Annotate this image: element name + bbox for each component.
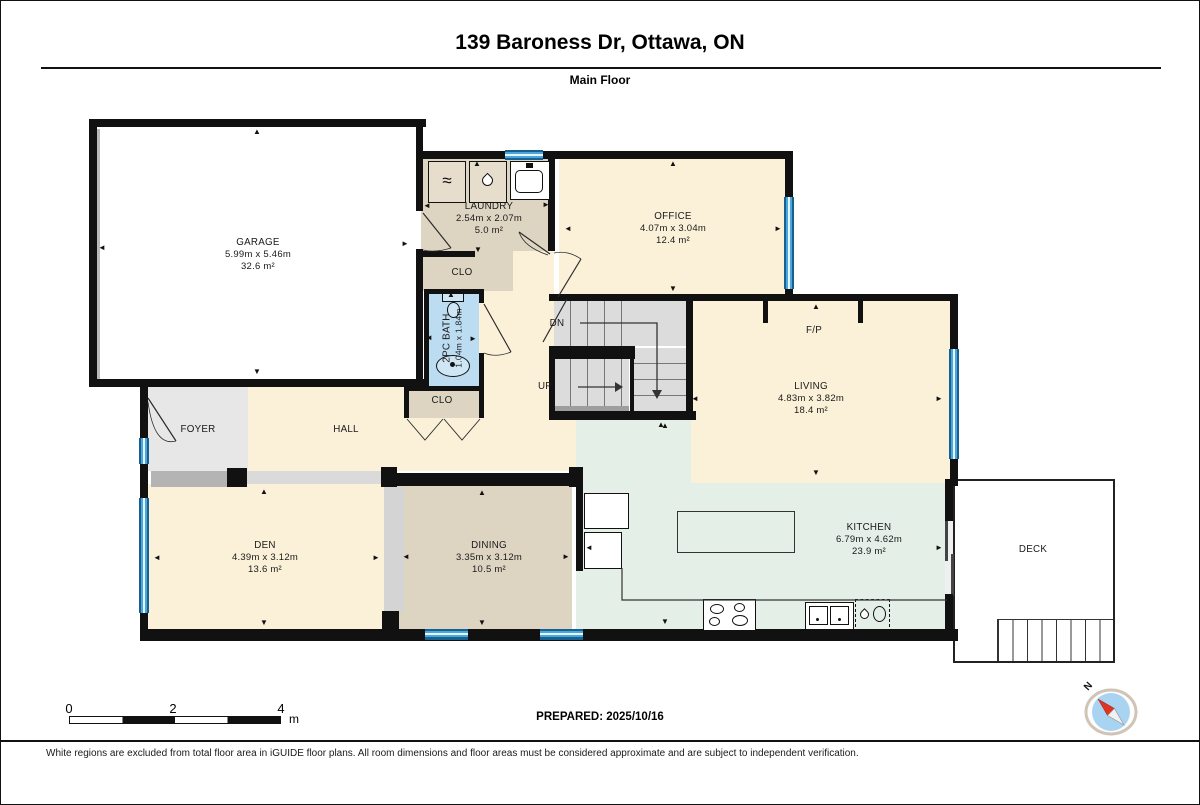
garage-door-panel — [97, 129, 100, 379]
window — [139, 438, 149, 464]
room-label-hall-closet: CLO — [432, 395, 453, 407]
floor-subtitle: Main Floor — [1, 73, 1199, 87]
wall — [89, 119, 426, 127]
room-name: LIVING — [778, 381, 844, 393]
corridor-floor-2 — [484, 291, 513, 391]
washer-icon: ≈ — [428, 161, 466, 203]
room-area: 10.5 m² — [456, 564, 522, 576]
window — [949, 349, 959, 459]
wall — [89, 379, 426, 387]
room-label-living: LIVING 4.83m x 3.82m 18.4 m² — [778, 381, 844, 417]
stairs-up-flight — [554, 359, 629, 408]
stove-burner — [710, 604, 724, 614]
wall-post — [227, 468, 247, 487]
room-label-bath: 2PC BATH 1.04m x 1.84m — [442, 308, 465, 367]
wall — [945, 486, 953, 521]
wall — [576, 486, 583, 571]
compass-rose: N — [1081, 677, 1139, 739]
deck-steps — [997, 619, 1113, 661]
dim-arrow-icon: ▼ — [478, 619, 486, 627]
room-name: DECK — [1019, 544, 1047, 556]
dim-arrow-icon: ▲ — [253, 128, 261, 136]
dim-arrow-icon: ◄ — [425, 334, 433, 342]
dim-arrow-icon: ► — [372, 554, 380, 562]
wall — [416, 249, 423, 379]
room-label-den: DEN 4.39m x 3.12m 13.6 m² — [232, 540, 298, 576]
room-name: 2PC BATH — [442, 308, 454, 367]
wall — [630, 359, 634, 414]
room-label-foyer: FOYER — [181, 424, 216, 436]
kitchen-island — [677, 511, 795, 553]
wall — [416, 119, 423, 211]
room-name: KITCHEN — [836, 522, 902, 534]
stairs-label: DN — [550, 318, 565, 330]
dim-arrow-icon: ◄ — [423, 202, 431, 210]
room-dims: 4.07m x 3.04m — [640, 223, 706, 235]
dim-arrow-icon: ▲ — [473, 160, 481, 168]
room-dims: 4.83m x 3.82m — [778, 393, 844, 405]
corridor-floor — [513, 251, 554, 391]
dishwasher-icon — [855, 599, 890, 632]
sink-basin — [515, 170, 543, 193]
footer-divider — [1, 740, 1200, 742]
dim-arrow-icon: ▼ — [474, 246, 482, 254]
room-label-dining: DINING 3.35m x 3.12m 10.5 m² — [456, 540, 522, 576]
dim-arrow-icon: ► — [469, 335, 477, 343]
room-label-office: OFFICE 4.07m x 3.04m 12.4 m² — [640, 211, 706, 247]
stairs-landing — [634, 299, 686, 346]
compass-north-label: N — [1082, 680, 1095, 693]
window — [784, 197, 794, 289]
room-area: 12.4 m² — [640, 235, 706, 247]
fridge-icon — [584, 493, 629, 529]
stove-icon — [703, 599, 756, 631]
window — [425, 629, 468, 640]
dim-arrow-icon: ▼ — [661, 618, 669, 626]
room-label-garage: GARAGE 5.99m x 5.46m 32.6 m² — [225, 237, 291, 273]
room-label-laundry-closet: CLO — [452, 267, 473, 279]
room-name: CLO — [432, 395, 453, 407]
stairs-down-label: DN — [550, 318, 565, 330]
title-divider — [41, 67, 1161, 69]
dim-arrow-icon: ◄ — [691, 395, 699, 403]
dim-arrow-icon: ▲ — [657, 421, 665, 429]
stairs-label: UP — [538, 381, 552, 393]
sink-basin — [830, 606, 849, 625]
sink-faucet — [526, 163, 533, 168]
room-area: 5.0 m² — [456, 225, 522, 237]
room-label-deck: DECK — [1019, 544, 1047, 556]
dim-arrow-icon: ◄ — [564, 225, 572, 233]
wall — [945, 479, 958, 486]
window — [139, 498, 149, 613]
kitchen-floor-upper — [576, 420, 691, 483]
wall — [549, 294, 958, 301]
dim-arrow-icon: ◄ — [98, 244, 106, 252]
room-dims: 2.54m x 2.07m — [456, 213, 522, 225]
dim-arrow-icon: ► — [542, 201, 550, 209]
room-name: F/P — [806, 325, 822, 337]
kitchen-sink-icon — [805, 602, 854, 630]
dim-arrow-icon: ► — [401, 240, 409, 248]
prepared-date: PREPARED: 2025/10/16 — [1, 711, 1199, 723]
room-label-laundry: LAUNDRY 2.54m x 2.07m 5.0 m² — [456, 201, 522, 237]
dim-arrow-icon: ▲ — [812, 303, 820, 311]
wall — [421, 251, 475, 257]
room-dims: 1.04m x 1.84m — [454, 308, 465, 367]
wall — [549, 346, 635, 359]
room-dims: 5.99m x 5.46m — [225, 249, 291, 261]
stairs-right-flight — [634, 348, 686, 411]
dial-icon — [873, 606, 886, 622]
dim-arrow-icon: ▼ — [812, 469, 820, 477]
room-area: 13.6 m² — [232, 564, 298, 576]
room-name: OFFICE — [640, 211, 706, 223]
room-name: GARAGE — [225, 237, 291, 249]
room-name: DEN — [232, 540, 298, 552]
foyer-arch — [151, 471, 227, 487]
wall — [89, 119, 97, 387]
disclaimer-text: White regions are excluded from total fl… — [46, 748, 859, 759]
dim-arrow-icon: ▲ — [260, 488, 268, 496]
patio-door-panel-1 — [945, 519, 948, 561]
droplet-icon — [858, 608, 871, 621]
laundry-sink-icon — [510, 161, 550, 200]
dim-arrow-icon: ► — [935, 544, 943, 552]
room-name: DINING — [456, 540, 522, 552]
stove-burner — [709, 617, 720, 626]
room-label-hall: HALL — [333, 424, 359, 436]
dim-arrow-icon: ► — [774, 225, 782, 233]
sink-drain — [816, 618, 819, 621]
wall — [549, 411, 696, 420]
dim-arrow-icon: ▼ — [260, 619, 268, 627]
page-title: 139 Baroness Dr, Ottawa, ON — [1, 31, 1199, 55]
dim-arrow-icon: ► — [935, 395, 943, 403]
dim-arrow-icon: ▼ — [669, 285, 677, 293]
dim-arrow-icon: ▲ — [478, 489, 486, 497]
fireplace-label: F/P — [806, 325, 822, 337]
dim-arrow-icon: ◄ — [402, 553, 410, 561]
dim-arrow-icon: ◄ — [153, 554, 161, 562]
room-dims: 4.39m x 3.12m — [232, 552, 298, 564]
dim-arrow-icon: ◄ — [585, 544, 593, 552]
room-name: LAUNDRY — [456, 201, 522, 213]
room-name: CLO — [452, 267, 473, 279]
washer-glyph: ≈ — [442, 171, 451, 190]
stairs-down-flight — [554, 299, 634, 346]
wall-post — [569, 467, 583, 487]
window — [505, 150, 543, 160]
wall-post — [382, 611, 399, 631]
dim-arrow-icon: ▲ — [447, 291, 455, 299]
stairs-up-label: UP — [538, 381, 552, 393]
dim-arrow-icon: ▼ — [253, 368, 261, 376]
room-name: HALL — [333, 424, 359, 436]
sink-drain — [838, 618, 841, 621]
stove-burner — [734, 603, 745, 612]
droplet-icon — [480, 173, 496, 189]
room-label-kitchen: KITCHEN 6.79m x 4.62m 23.9 m² — [836, 522, 902, 558]
room-dims: 3.35m x 3.12m — [456, 552, 522, 564]
den-arch — [247, 471, 383, 484]
room-area: 18.4 m² — [778, 405, 844, 417]
dim-arrow-icon: ► — [562, 553, 570, 561]
floor-plan-page: 139 Baroness Dr, Ottawa, ON Main Floor — [0, 0, 1200, 805]
dim-arrow-icon: ▲ — [669, 160, 677, 168]
window — [540, 629, 583, 640]
room-area: 32.6 m² — [225, 261, 291, 273]
wall — [554, 151, 793, 159]
room-dims: 6.79m x 4.62m — [836, 534, 902, 546]
bath-door-opening — [479, 303, 484, 353]
stove-burner — [732, 615, 748, 626]
patio-door-panel-2 — [951, 554, 954, 596]
room-name: FOYER — [181, 424, 216, 436]
wall — [395, 473, 575, 486]
den-dining-divider — [384, 487, 404, 613]
room-area: 23.9 m² — [836, 546, 902, 558]
sink-basin — [809, 606, 828, 625]
